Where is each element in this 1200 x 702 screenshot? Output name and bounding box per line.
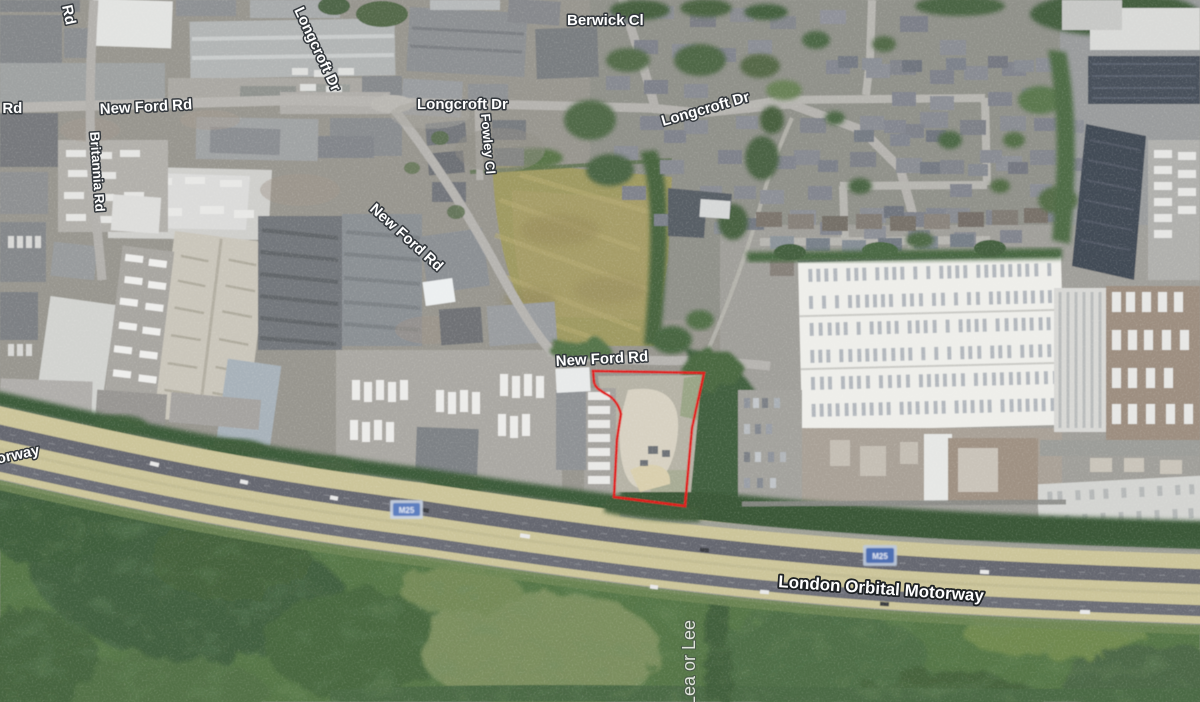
svg-text:Longcroft Dr: Longcroft Dr bbox=[417, 96, 508, 113]
svg-text:ry Rd: ry Rd bbox=[0, 100, 22, 117]
svg-text:Lea or Lee: Lea or Lee bbox=[679, 620, 699, 702]
svg-text:M25: M25 bbox=[399, 506, 415, 515]
svg-text:M25: M25 bbox=[872, 552, 888, 561]
svg-text:Berwick Cl: Berwick Cl bbox=[567, 12, 644, 29]
